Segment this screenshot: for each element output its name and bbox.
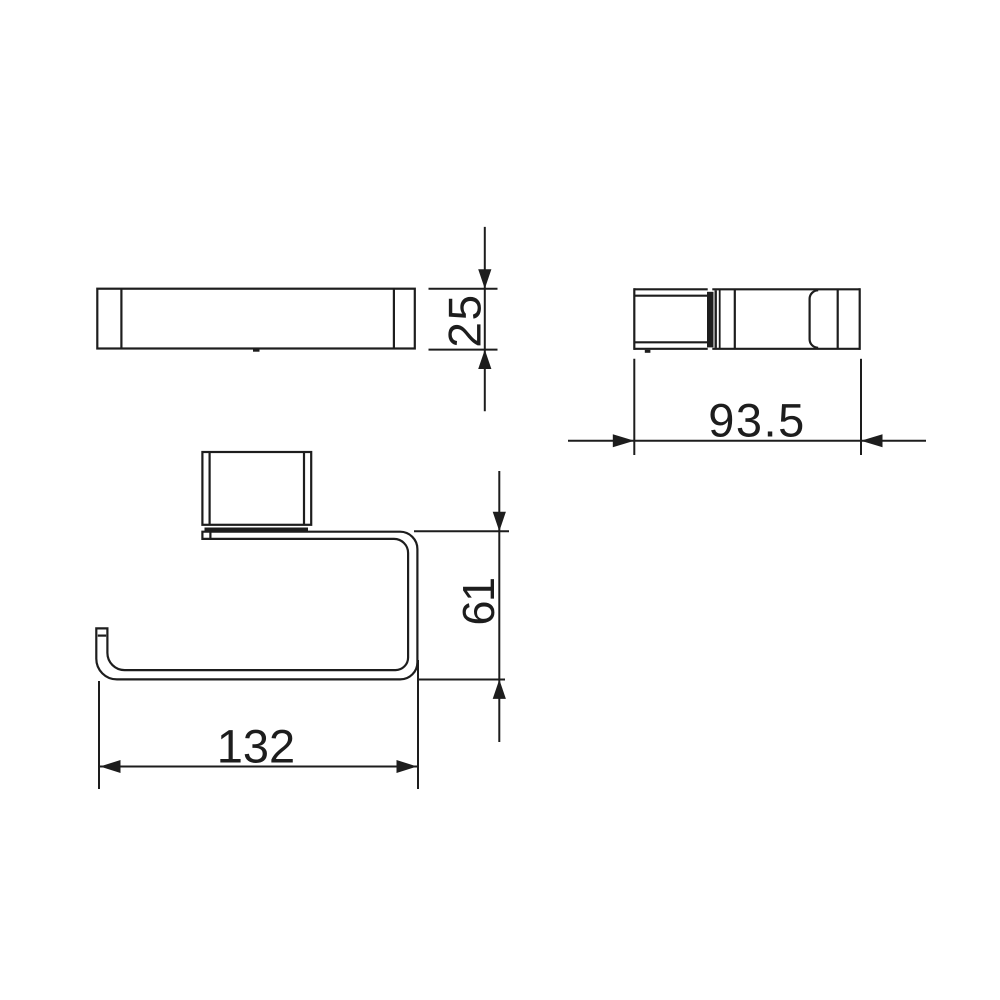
svg-text:93.5: 93.5 (708, 393, 805, 446)
svg-text:25: 25 (438, 293, 490, 347)
svg-text:132: 132 (217, 720, 295, 773)
svg-text:61: 61 (453, 578, 504, 625)
